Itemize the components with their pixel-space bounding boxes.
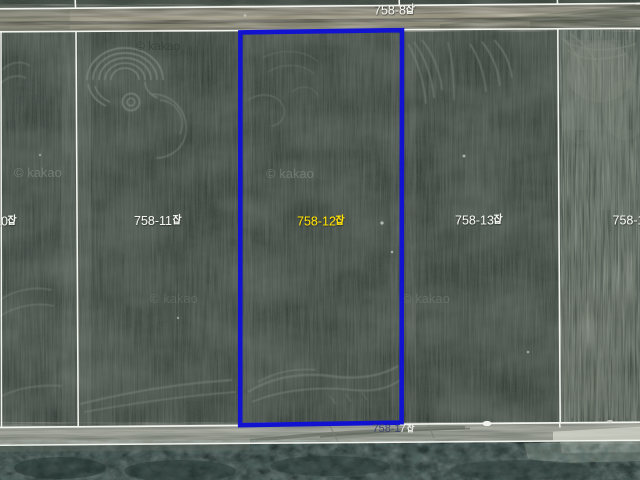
svg-text:© kakao: © kakao <box>14 165 62 180</box>
svg-text:758-11: 758-11 <box>134 214 172 228</box>
svg-text:7: 7 <box>400 423 406 435</box>
svg-text:758-1: 758-1 <box>373 423 401 435</box>
svg-text:758-10: 758-10 <box>0 215 8 229</box>
svg-text:758-8: 758-8 <box>374 4 406 18</box>
svg-text:© kakao: © kakao <box>136 39 181 53</box>
svg-text:© kakao: © kakao <box>402 291 450 306</box>
svg-text:© kakao: © kakao <box>266 166 314 181</box>
svg-text:758-13: 758-13 <box>455 214 494 228</box>
svg-text:758-12: 758-12 <box>297 215 336 229</box>
svg-text:758-14: 758-14 <box>613 214 640 228</box>
svg-text:© kakao: © kakao <box>150 291 198 306</box>
